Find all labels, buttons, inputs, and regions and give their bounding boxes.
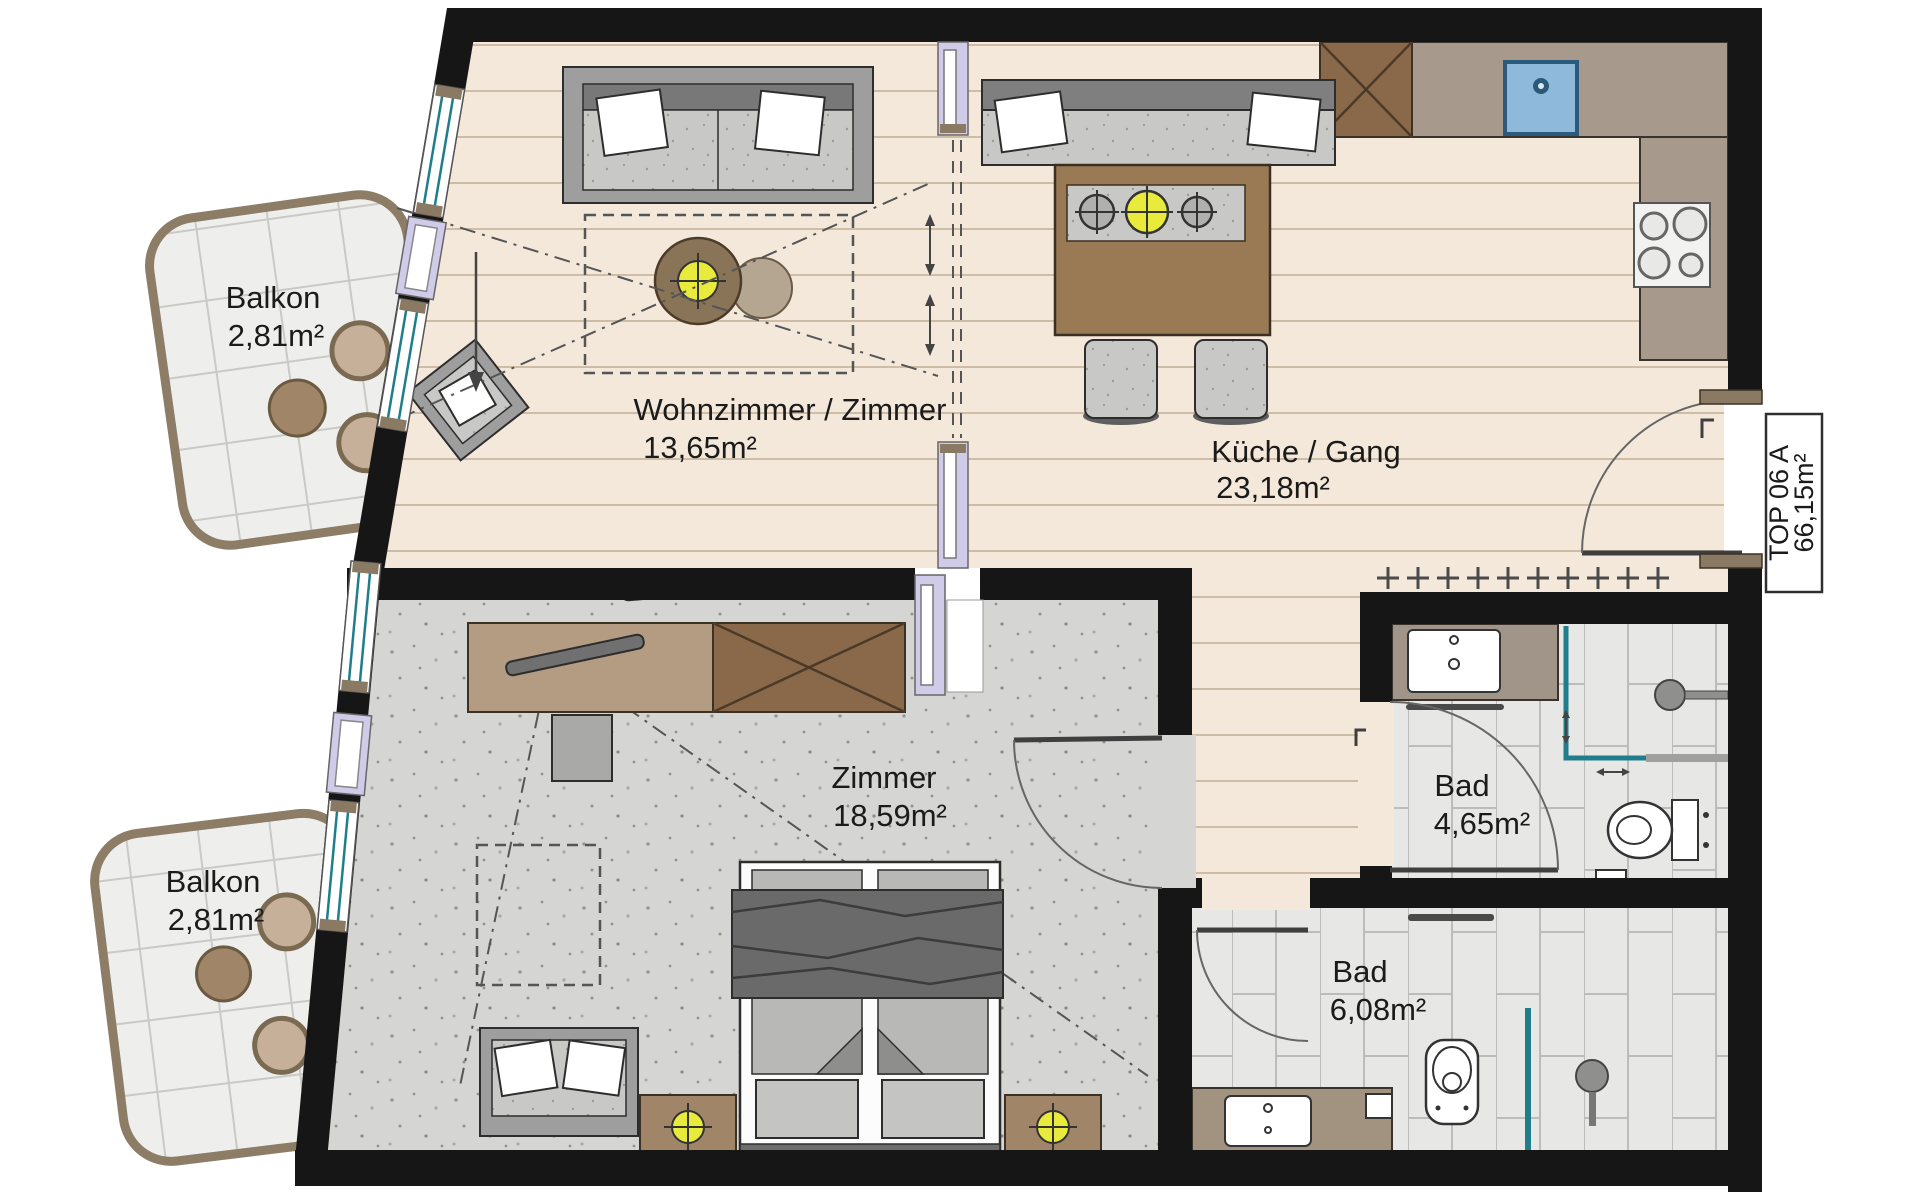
- divider-wall-left: [347, 568, 915, 600]
- sofa: [563, 67, 873, 203]
- top-wall: [447, 8, 1745, 42]
- wardrobe: [713, 623, 905, 712]
- room-label-name: Küche / Gang: [1211, 434, 1401, 469]
- room-label-name: Bad: [1332, 954, 1387, 989]
- room-label-name: Wohnzimmer / Zimmer: [634, 392, 947, 427]
- pillow: [1247, 93, 1320, 152]
- nightstand: [640, 1095, 736, 1158]
- pillow: [995, 92, 1068, 153]
- room-label-name: Balkon: [166, 864, 261, 899]
- right-wall-lower: [1728, 556, 1762, 1192]
- kitchen-bath-wall: [1360, 592, 1745, 624]
- bed: [732, 862, 1003, 1158]
- room-label-area: 13,65m²: [643, 430, 757, 465]
- pillow: [495, 1040, 558, 1096]
- bedroom-hall-wall-lower: [1158, 888, 1192, 1152]
- hall-bath-wall-upper: [1360, 592, 1392, 702]
- dresser: [552, 715, 612, 781]
- room-label-area: 23,18m²: [1216, 470, 1330, 505]
- pillow: [596, 90, 667, 156]
- pillow: [882, 1080, 984, 1138]
- room-label-name: Balkon: [226, 280, 321, 315]
- unit-area: 66,15m²: [1789, 453, 1819, 552]
- bench-sofa: [480, 1028, 638, 1136]
- right-wall-upper: [1728, 8, 1762, 402]
- towel-rail: [1408, 914, 1494, 921]
- pillow: [563, 1040, 625, 1095]
- toilet: [1608, 800, 1709, 860]
- balcony-door: [326, 712, 371, 795]
- room-label-area: 2,81m²: [228, 318, 324, 353]
- room-label-area: 18,59m²: [833, 798, 947, 833]
- coffee-table: [655, 238, 741, 324]
- dining-bench: [982, 80, 1335, 165]
- kitchen-sink: [1505, 62, 1577, 134]
- dining-table: [1055, 165, 1270, 335]
- sideboard: [468, 623, 713, 712]
- floor-plan-page: Balkon 2,81m² Wohnzimmer / Zimmer 13,65m…: [0, 0, 1920, 1200]
- room-label-area: 6,08m²: [1330, 992, 1426, 1027]
- floor-plan: Balkon 2,81m² Wohnzimmer / Zimmer 13,65m…: [0, 0, 1920, 1200]
- shower-head: [1655, 680, 1685, 710]
- room-label-name: Bad: [1434, 768, 1489, 803]
- room-label-name: Zimmer: [831, 760, 936, 795]
- shower-head: [1576, 1060, 1608, 1092]
- room-label-area: 4,65m²: [1434, 806, 1530, 841]
- divider-wall-right: [980, 568, 1192, 600]
- bottom-wall: [295, 1150, 1745, 1186]
- unit-label-box: TOP 06 A 66,15m²: [1764, 414, 1822, 592]
- bedroom-hall-wall-upper: [1158, 600, 1192, 735]
- washbasin: [1408, 630, 1500, 692]
- stove: [1634, 203, 1710, 287]
- nightstand: [1005, 1095, 1101, 1158]
- toilet: [1426, 1040, 1478, 1124]
- bedroom-pocket-door: [915, 575, 983, 695]
- baths-divider-wall: [1310, 878, 1728, 908]
- room-label-area: 2,81m²: [168, 902, 264, 937]
- pillow: [755, 91, 825, 155]
- glass-partition: [1525, 1008, 1531, 1152]
- pillow: [756, 1080, 858, 1138]
